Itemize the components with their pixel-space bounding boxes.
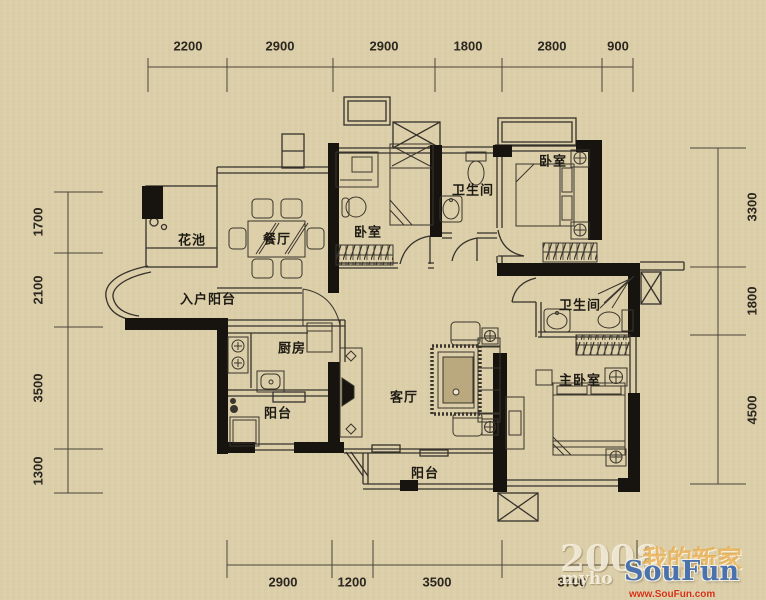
room-label-flower-pool: 花池 [178, 230, 206, 249]
dim-top-4: 1800 [454, 39, 483, 54]
dim-top-6: 900 [607, 39, 629, 54]
dim-bottom-2: 1200 [338, 575, 367, 590]
room-label-entry-balcony: 入户阳台 [180, 289, 236, 308]
room-label-bath-mid: 卫生间 [559, 295, 601, 314]
room-label-living: 客厅 [390, 387, 418, 406]
room-label-dining: 餐厅 [263, 229, 291, 248]
dim-bottom-3: 3500 [423, 575, 452, 590]
dim-left-1: 1700 [31, 208, 46, 237]
room-label-balcony-left: 阳台 [264, 403, 292, 422]
master-bedroom-furniture [506, 335, 630, 466]
room-label-master-bedroom: 主卧室 [559, 370, 601, 389]
dim-left-2: 2100 [31, 276, 46, 305]
living-room-furniture [340, 322, 500, 437]
dim-top-5: 2800 [538, 39, 567, 54]
dim-top-2: 2900 [266, 39, 295, 54]
dim-left-4: 1300 [31, 457, 46, 486]
room-label-kitchen: 厨房 [278, 338, 306, 357]
dim-top-1: 2200 [174, 39, 203, 54]
room-label-bedroom-top: 卧室 [354, 222, 382, 241]
room-label-bath-top: 卫生间 [452, 180, 494, 199]
floor-plan-drawing [0, 0, 766, 600]
dim-bottom-1: 2900 [269, 575, 298, 590]
dim-left-3: 3500 [31, 374, 46, 403]
dim-top-3: 2900 [370, 39, 399, 54]
room-label-balcony-bottom: 阳台 [411, 463, 439, 482]
dim-right-3: 4500 [745, 396, 760, 425]
dim-bottom-4: 3700 [558, 575, 587, 590]
room-label-bedroom-right: 卧室 [539, 151, 567, 170]
balcony-left-fixtures [230, 399, 259, 447]
floor-plan-canvas: 花池 餐厅 卧室 卫生间 卧室 入户阳台 厨房 卫生间 客厅 主卧室 阳台 阳台… [0, 0, 766, 600]
bedroom-top-furniture [336, 144, 433, 265]
walls-structural [125, 140, 640, 492]
dim-right-1: 3300 [745, 193, 760, 222]
dim-right-2: 1800 [745, 287, 760, 316]
